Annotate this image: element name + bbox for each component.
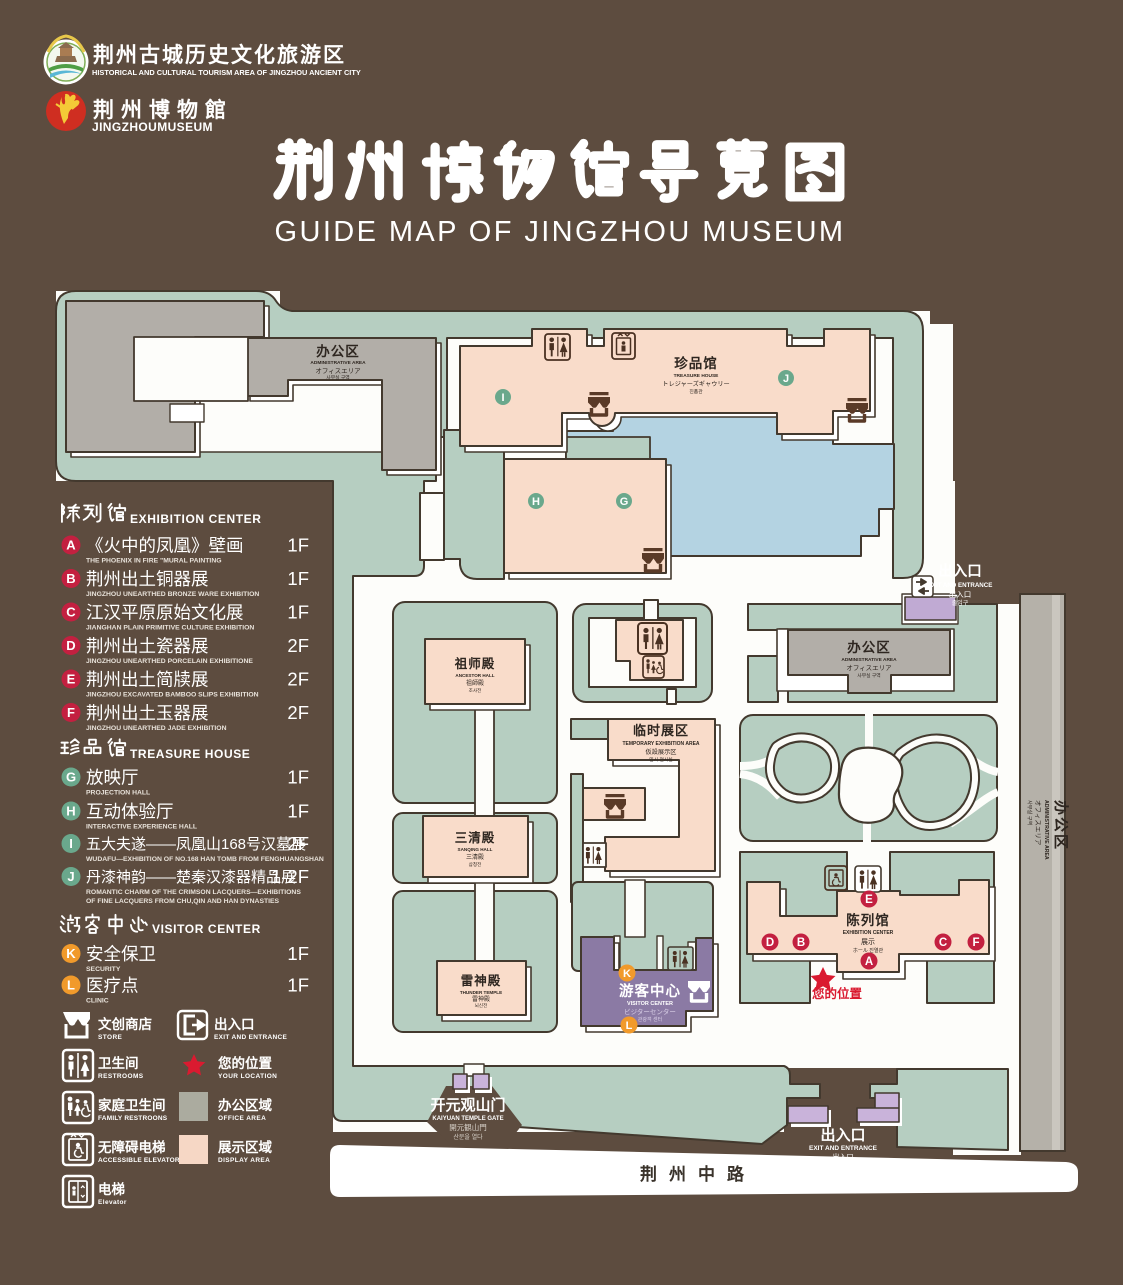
svg-text:THE PHOENIX IN FIRE "MURAL PAI: THE PHOENIX IN FIRE "MURAL PAINTING	[86, 558, 222, 565]
svg-text:ROMANTIC CHARM OF THE CRIMSON: ROMANTIC CHARM OF THE CRIMSON LACQUERS—E…	[86, 889, 301, 896]
svg-text:文创商店: 文创商店	[98, 1016, 152, 1032]
svg-text:丹漆神韵——楚秦汉漆器精品展: 丹漆神韵——楚秦汉漆器精品展	[86, 869, 296, 886]
svg-text:WUDAFU—EXHIBITION OF NO.168 HA: WUDAFU—EXHIBITION OF NO.168 HAN TOMB FRO…	[86, 856, 324, 863]
svg-text:医疗点: 医疗点	[86, 976, 139, 996]
svg-text:五大夫遂——凤凰山168号汉墓展: 五大夫遂——凤凰山168号汉墓展	[86, 836, 306, 853]
svg-text:荆州博物館: 荆州博物館	[93, 98, 233, 122]
svg-text:JINGZHOU EXCAVATED BAMBOO SLIP: JINGZHOU EXCAVATED BAMBOO SLIPS EXHIBITI…	[86, 692, 259, 699]
svg-text:FAMILY RESTROONS: FAMILY RESTROONS	[98, 1115, 168, 1122]
svg-text:无障碍电梯: 无障碍电梯	[97, 1139, 166, 1155]
svg-text:出入口: 出入口	[833, 1152, 854, 1161]
svg-text:진품관: 진품관	[689, 388, 703, 395]
svg-text:1F: 1F	[287, 943, 309, 964]
svg-text:江汉平原原始文化展: 江汉平原原始文化展	[86, 603, 244, 623]
svg-text:H: H	[66, 804, 75, 819]
svg-text:放映厅: 放映厅	[86, 768, 139, 788]
svg-text:EXIT AND ENTRANCE: EXIT AND ENTRANCE	[214, 1034, 287, 1041]
svg-text:VISITOR CENTER: VISITOR CENTER	[152, 922, 261, 936]
svg-text:1F: 1F	[287, 801, 309, 822]
svg-text:KAIYUAN TEMPLE GATE: KAIYUAN TEMPLE GATE	[432, 1116, 503, 1122]
svg-text:J: J	[783, 373, 789, 385]
svg-text:K: K	[623, 968, 631, 980]
svg-text:2F: 2F	[287, 702, 309, 723]
svg-text:OF FINE LACQUERS FROM CHU,QIN: OF FINE LACQUERS FROM CHU,QIN AND HAN DY…	[86, 898, 280, 905]
svg-text:TEMPORARY EXHIBITION AREA: TEMPORARY EXHIBITION AREA	[622, 741, 699, 747]
svg-text:B: B	[66, 571, 75, 586]
svg-text:H: H	[532, 496, 540, 508]
svg-text:HISTORICAL AND CULTURAL TOURIS: HISTORICAL AND CULTURAL TOURISM AREA OF …	[92, 68, 361, 77]
svg-text:2F: 2F	[287, 833, 309, 854]
svg-text:RESTROOMS: RESTROOMS	[98, 1073, 144, 1080]
svg-text:ANCESTOR HALL: ANCESTOR HALL	[455, 673, 494, 678]
svg-text:2F: 2F	[287, 635, 309, 656]
svg-text:뇌신전: 뇌신전	[475, 1002, 488, 1009]
svg-text:1F: 1F	[287, 975, 309, 996]
svg-text:办公区: 办公区	[316, 343, 360, 359]
svg-text:《火中的凤凰》壁画: 《火中的凤凰》壁画	[86, 536, 244, 556]
svg-text:安全保卫: 安全保卫	[86, 944, 156, 964]
svg-text:OFFICE AREA: OFFICE AREA	[218, 1115, 266, 1122]
svg-text:CLINIC: CLINIC	[86, 998, 109, 1005]
svg-text:SANQING HALL: SANQING HALL	[458, 847, 493, 852]
svg-text:展示: 展示	[861, 938, 875, 946]
svg-text:出入口: 出入口	[938, 562, 982, 580]
svg-text:珍品馆: 珍品馆	[674, 355, 718, 371]
svg-text:I: I	[69, 836, 73, 851]
svg-text:荆州中路: 荆州中路	[640, 1164, 756, 1184]
svg-text:EXHIBITION CENTER: EXHIBITION CENTER	[843, 930, 894, 936]
svg-text:YOUR LOCATION: YOUR LOCATION	[218, 1073, 277, 1080]
svg-text:조사전: 조사전	[469, 687, 482, 694]
svg-text:1-2F: 1-2F	[271, 866, 309, 887]
svg-text:INTERACTIVE EXPERIENCE HALL: INTERACTIVE EXPERIENCE HALL	[86, 824, 197, 831]
svg-text:互动体验厅: 互动体验厅	[86, 802, 174, 822]
svg-text:출입구: 출입구	[952, 599, 969, 607]
svg-text:GUIDE MAP OF JINGZHOU MUSEUM: GUIDE MAP OF JINGZHOU MUSEUM	[275, 216, 846, 248]
svg-text:STORE: STORE	[98, 1034, 123, 1041]
svg-text:관광객 센터: 관광객 센터	[638, 1016, 662, 1023]
svg-text:您的位置: 您的位置	[218, 1055, 272, 1071]
svg-text:出入口: 出入口	[214, 1016, 255, 1032]
svg-text:TREASURE HOUSE: TREASURE HOUSE	[674, 373, 720, 379]
svg-text:사무실 구역: 사무실 구역	[857, 672, 880, 679]
svg-text:出入口: 出入口	[949, 589, 972, 599]
svg-text:荆州出土铜器展: 荆州出土铜器展	[86, 569, 209, 589]
svg-text:THUNDER TEMPLE: THUNDER TEMPLE	[460, 990, 502, 995]
svg-text:PROJECTION HALL: PROJECTION HALL	[86, 790, 150, 797]
svg-text:祖师殿: 祖师殿	[454, 656, 496, 671]
svg-text:雷神殿: 雷神殿	[461, 973, 502, 988]
svg-text:임시 전시실: 임시 전시실	[649, 756, 672, 763]
svg-text:办公区: 办公区	[847, 639, 891, 655]
svg-text:您的位置: 您的位置	[812, 986, 863, 1001]
svg-text:游客中心: 游客中心	[619, 982, 681, 1000]
svg-text:1F: 1F	[287, 767, 309, 788]
svg-text:E: E	[67, 672, 76, 687]
svg-text:C: C	[66, 605, 76, 620]
svg-text:삼청전: 삼청전	[469, 861, 482, 867]
svg-text:JINGZHOUMUSEUM: JINGZHOUMUSEUM	[92, 120, 213, 134]
svg-text:开元观山门: 开元观山门	[430, 1096, 505, 1114]
svg-text:ADMINISTRATIVE AREA: ADMINISTRATIVE AREA	[841, 657, 897, 663]
svg-text:オフィスエリア: オフィスエリア	[315, 367, 361, 375]
svg-text:トレジャーズギャウリー: トレジャーズギャウリー	[662, 380, 729, 388]
svg-text:荆州古城历史文化旅游区: 荆州古城历史文化旅游区	[93, 43, 346, 67]
svg-text:A: A	[865, 956, 873, 968]
svg-text:F: F	[67, 705, 75, 720]
svg-text:荆州出土玉器展: 荆州出土玉器展	[86, 703, 209, 723]
svg-text:陈列馆: 陈列馆	[846, 912, 890, 928]
svg-text:DISPLAY AREA: DISPLAY AREA	[218, 1157, 270, 1164]
svg-text:办公区: 办公区	[1052, 800, 1070, 851]
svg-text:1F: 1F	[287, 535, 309, 556]
svg-text:사무실 구역: 사무실 구역	[1026, 800, 1034, 826]
svg-text:JIANGHAN PLAIN PRIMITIVE CULTU: JIANGHAN PLAIN PRIMITIVE CULTURE EXHIBIT…	[86, 625, 254, 632]
svg-text:EXIT AND ENTRANCE: EXIT AND ENTRANCE	[928, 582, 993, 589]
svg-text:オフィスエリア: オフィスエリア	[1034, 800, 1042, 846]
svg-text:출입구: 출입구	[835, 1160, 850, 1168]
svg-text:G: G	[620, 496, 629, 508]
svg-text:荆州出土瓷器展: 荆州出土瓷器展	[86, 636, 209, 656]
svg-text:ADMINISTRATIVE AREA: ADMINISTRATIVE AREA	[310, 360, 366, 366]
svg-text:祖師殿: 祖師殿	[466, 679, 484, 687]
svg-text:出入口: 出入口	[820, 1126, 865, 1144]
svg-text:B: B	[797, 937, 805, 949]
svg-text:EXHIBITION CENTER: EXHIBITION CENTER	[130, 512, 262, 526]
svg-text:雷神殿: 雷神殿	[472, 995, 490, 1003]
svg-text:2F: 2F	[287, 669, 309, 690]
svg-text:SECURITY: SECURITY	[86, 966, 121, 973]
svg-text:J: J	[67, 869, 74, 884]
svg-text:JINGZHOU UNEARTHED PORCELAIN E: JINGZHOU UNEARTHED PORCELAIN EXHIBITIONE	[86, 658, 253, 665]
svg-text:JINGZHOU UNEARTHED BRONZE WARE: JINGZHOU UNEARTHED BRONZE WARE EXHIBITIO…	[86, 591, 259, 598]
svg-text:K: K	[66, 946, 76, 961]
svg-text:TREASURE HOUSE: TREASURE HOUSE	[130, 747, 250, 761]
svg-text:A: A	[66, 538, 76, 553]
svg-text:사무실 구역: 사무실 구역	[326, 374, 349, 381]
svg-text:E: E	[865, 894, 873, 906]
svg-text:1F: 1F	[287, 602, 309, 623]
svg-text:家庭卫生间: 家庭卫生间	[98, 1097, 166, 1113]
svg-text:电梯: 电梯	[98, 1181, 125, 1197]
svg-text:荆州出土简牍展: 荆州出土简牍展	[86, 670, 209, 690]
svg-text:EXIT AND ENTRANCE: EXIT AND ENTRANCE	[809, 1145, 878, 1152]
svg-text:三清殿: 三清殿	[466, 853, 484, 861]
svg-text:1F: 1F	[287, 568, 309, 589]
svg-text:C: C	[939, 937, 947, 949]
svg-text:D: D	[766, 937, 774, 949]
svg-text:G: G	[66, 770, 76, 785]
svg-text:ACCESSIBLE ELEVATOR: ACCESSIBLE ELEVATOR	[98, 1157, 180, 1164]
svg-text:開元観山門: 開元観山門	[449, 1122, 487, 1132]
svg-text:ビジターセンター: ビジターセンター	[624, 1007, 676, 1016]
svg-text:I: I	[501, 392, 504, 404]
svg-text:산문을 열다: 산문을 열다	[453, 1133, 483, 1141]
svg-text:VISITOR CENTER: VISITOR CENTER	[627, 1001, 673, 1007]
svg-text:三清殿: 三清殿	[455, 830, 496, 845]
svg-text:オフィスエリア: オフィスエリア	[846, 664, 892, 672]
svg-text:办公区域: 办公区域	[218, 1097, 272, 1113]
svg-text:仮設展示区: 仮設展示区	[646, 748, 677, 756]
svg-text:ADMINISTRATIVE AREA: ADMINISTRATIVE AREA	[1043, 800, 1049, 860]
svg-text:展示区域: 展示区域	[218, 1139, 272, 1155]
svg-text:F: F	[972, 937, 979, 949]
svg-text:Elevator: Elevator	[98, 1199, 127, 1206]
svg-text:卫生间: 卫生间	[98, 1055, 139, 1071]
svg-text:临时展区: 临时展区	[633, 723, 689, 738]
svg-text:L: L	[67, 978, 75, 993]
svg-text:JINGZHOU UNEARTHED JADE EXHIBI: JINGZHOU UNEARTHED JADE EXHIBITION	[86, 725, 227, 732]
svg-text:D: D	[66, 638, 75, 653]
svg-text:L: L	[626, 1020, 633, 1032]
